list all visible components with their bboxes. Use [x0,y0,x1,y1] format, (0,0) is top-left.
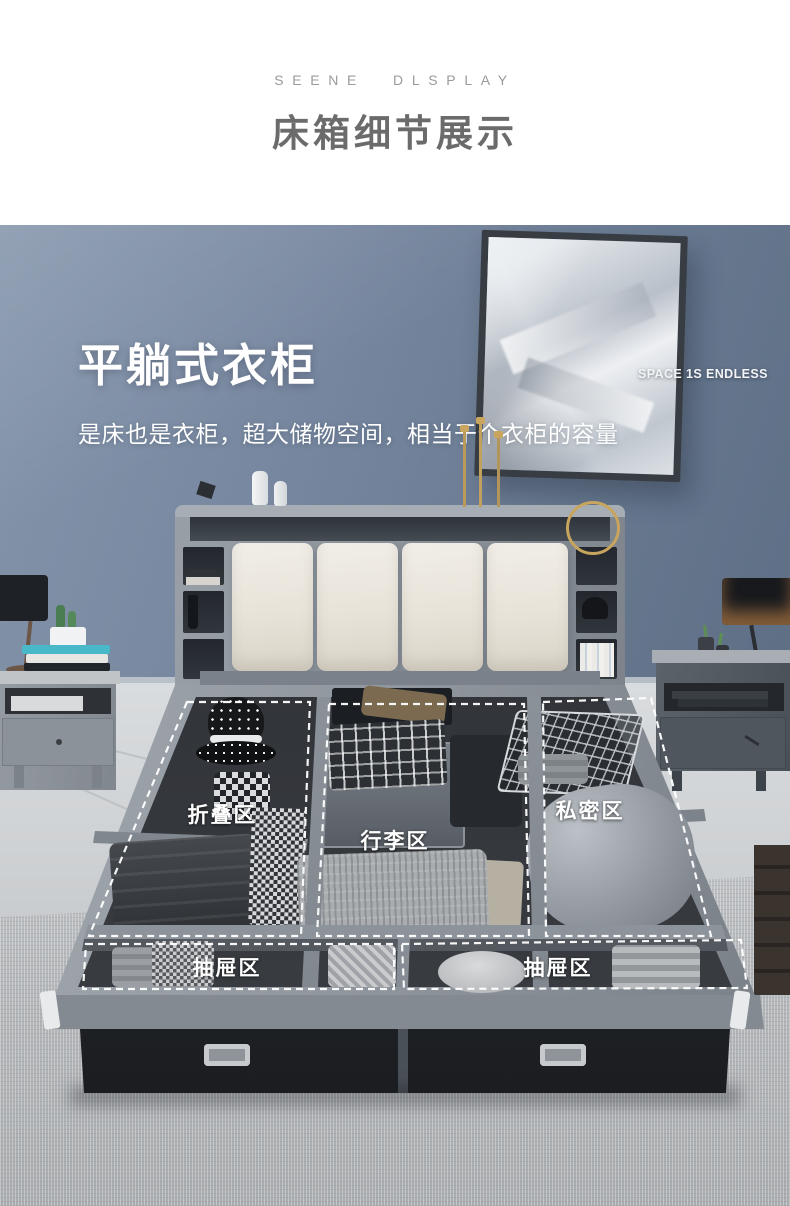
zone-label-drawer-left: 抽屉区 [172,952,282,982]
zone-label-fold: 折叠区 [167,799,277,829]
wood-floor-strip [754,845,790,995]
shelf-books-flat [186,577,220,585]
nightstand-leg [92,766,102,788]
decor-vase [252,471,268,505]
table-lamp-left-shade [0,575,48,621]
hero-headline: 平躺式衣柜 [78,329,318,394]
dark-books [678,699,768,707]
folded-clothes [328,945,396,987]
drawer-knob [56,739,62,745]
nightstand-leg [756,771,766,791]
headboard-cushions [232,543,568,671]
book-stack [22,645,110,654]
leather-blanket [109,833,261,941]
vase-sprig [718,633,723,645]
headboard-cushion [402,543,483,671]
drawer-gap [398,1029,408,1093]
candle-cup [460,425,469,432]
gold-hoop-mirror [566,501,620,555]
hat-brim [196,741,276,765]
dark-books [672,691,768,699]
folded-clothes [612,945,700,989]
cactus-plant [56,605,65,629]
headboard-cushion [317,543,398,671]
table-lamp-right-shade [722,578,790,625]
shelf-vase [188,595,198,629]
nightstand-left-top [0,671,120,684]
nightstand-leg [14,766,24,788]
headboard-cushion [232,543,313,671]
headboard-cushion [487,543,568,671]
drawer-handle [540,1044,586,1066]
magazine [11,696,83,711]
zone-label-drawer-right: 抽屉区 [503,952,613,982]
book-stack [24,663,110,671]
shelf-books-flat [189,569,217,576]
candle-cup [476,417,485,424]
headboard-top-shelf [190,517,610,541]
bedroom-photo: SPACE 1S ENDLESS 平躺式衣柜 是床也是衣柜，超大储物空间，相当于… [0,225,790,1206]
page-title: 床箱细节展示 [0,103,790,157]
zone-label-luggage: 行李区 [340,825,450,855]
candle-cup [494,431,503,438]
zone-label-private: 私密区 [535,795,645,825]
plaid-blanket [326,719,447,791]
polka-dot-hat [196,697,276,767]
gold-candlestick [497,437,500,507]
page-header: SEENE DLSPLAY 床箱细节展示 [0,0,790,225]
brand-eyebrow-text: SEENE DLSPLAY [0,72,790,88]
headboard-top-rim [175,505,625,517]
bed-shadow [70,1087,740,1105]
drawer-handle [204,1044,250,1066]
nightstand-right-top [652,650,790,663]
nightstand-right-drawer [660,717,786,769]
painting-caption: SPACE 1S ENDLESS [638,367,768,381]
gold-candlestick [479,423,482,507]
paint-stroke [500,282,656,374]
hero-subheadline: 是床也是衣柜，超大储物空间，相当于个衣柜的容量 [78,415,638,449]
shelf-black-hat [582,597,608,619]
book-stack [26,654,108,663]
gold-candlestick [463,431,466,507]
nightstand-leg [672,771,682,791]
decor-vase [274,481,287,506]
decor-geometric [196,481,216,499]
